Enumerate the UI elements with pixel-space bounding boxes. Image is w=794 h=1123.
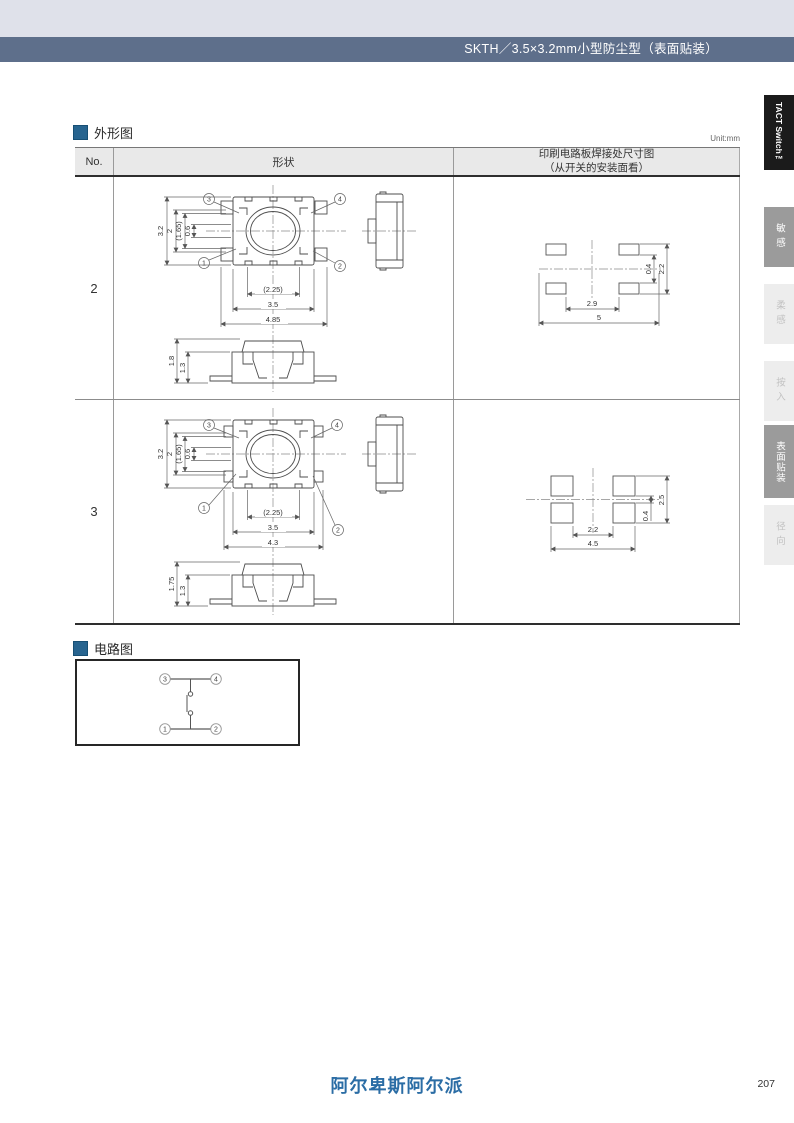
side-tab-label: 径向 [772,521,786,550]
row2-shape-cell: 3.2 2 (1.65) 0.6 (2.25) 3.5 4.85 1.8 1.3 [113,177,453,399]
side-tab-label: 按入 [772,377,786,406]
dim-label: 4.85 [266,315,281,324]
dim-label: (2.25) [263,508,283,517]
circuit-pin-label: 3 [163,677,167,684]
side-tab-label: 敏感 [772,223,786,252]
circuit-diagram: 3 4 1 2 [77,661,298,744]
pin-label: 1 [202,506,206,513]
col-header-shape: 形状 [113,148,453,175]
dim-label: 2.5 [657,495,666,505]
dim-label: 3.5 [268,300,278,309]
row3-pad-cell: 2.5 0.4 2.2 4.5 [453,400,740,623]
dim-label: 1.3 [178,586,187,596]
pin-label: 4 [338,197,342,204]
col-header-pcb: 印刷电路板焊接处尺寸图 （从开关的安装面看） [453,148,740,175]
dim-label: (1.65) [174,221,183,241]
alps-alpine-logo: 阿尔卑斯阿尔派 [0,1072,794,1098]
pin-label: 2 [336,528,340,535]
dim-label: 3.5 [268,523,278,532]
outline-section-header: 外形图 [73,125,133,140]
row2-shape-drawing: 3.2 2 (1.65) 0.6 (2.25) 3.5 4.85 1.8 1.3 [114,177,454,399]
row3-shape-cell: 3.2 2 (1.65) 0.6 (2.25) 3.5 4.3 1.75 1.3 [113,400,453,623]
dim-label: 0.4 [644,264,653,274]
side-tab-smd: 表面贴装 [764,425,794,498]
row3-pad-layout: 2.5 0.4 2.2 4.5 [454,400,739,623]
dim-label: 3.2 [156,226,165,236]
row2-no: 2 [75,177,113,399]
dim-label: 3.2 [156,449,165,459]
datasheet-page: SKTH／3.5×3.2mm小型防尘型（表面贴装） TACT Switch™ 敏… [0,0,794,1123]
circuit-diagram-box: 3 4 1 2 [75,659,300,746]
dim-label: 1.75 [167,577,176,592]
page-number: 207 [757,1078,775,1090]
side-tab-label: 柔感 [772,300,786,329]
dim-label: 2 [165,229,174,233]
dim-label: 2 [165,452,174,456]
side-tab-radial: 径向 [764,505,794,565]
outline-table-header: No. 形状 印刷电路板焊接处尺寸图 （从开关的安装面看） [75,148,740,177]
pin-label: 3 [207,197,211,204]
col-header-pcb-line1: 印刷电路板焊接处尺寸图 [539,148,655,161]
circuit-section-title: 电路图 [94,639,133,658]
dim-label: 2.9 [587,299,597,308]
side-tab-tact-switch: TACT Switch™ [764,95,794,170]
col-header-pcb-line2: （从开关的安装面看） [544,162,649,175]
dim-label: 2.2 [588,525,598,534]
unit-label: Unit:mm [710,134,740,143]
circuit-section-header: 电路图 [73,641,133,656]
row2-pad-cell: 0.4 2.2 2.9 5 [453,177,740,399]
dim-label: 4.5 [588,539,598,548]
section-bullet-icon [73,125,88,140]
side-tab-label: 表面贴装 [772,441,786,483]
circuit-pin-label: 4 [214,677,218,684]
side-tab-push: 按入 [764,361,794,421]
pin-label: 4 [335,423,339,430]
dim-label: 0.4 [641,511,650,521]
row2-pad-layout: 0.4 2.2 2.9 5 [454,177,739,399]
table-row-no3: 3 [75,400,740,625]
row3-no: 3 [75,400,113,623]
dim-label: 1.3 [178,363,187,373]
dim-label: 4.3 [268,538,278,547]
outline-table: No. 形状 印刷电路板焊接处尺寸图 （从开关的安装面看） 2 [75,147,740,625]
circuit-pin-label: 2 [214,727,218,734]
dim-label: (2.25) [263,285,283,294]
side-tab-sensitive: 敏感 [764,207,794,267]
dim-label: 1.8 [167,356,176,366]
dim-label: 2.2 [657,264,666,274]
section-bullet-icon [73,641,88,656]
dim-label: (1.65) [174,444,183,464]
outline-section-title: 外形图 [94,123,133,142]
pin-label: 2 [338,264,342,271]
table-row-no2: 2 [75,177,740,400]
pin-label: 3 [207,423,211,430]
dim-label: 0.6 [183,449,192,459]
side-tab-tact-switch-label: TACT Switch™ [774,102,784,164]
row3-shape-drawing: 3.2 2 (1.65) 0.6 (2.25) 3.5 4.3 1.75 1.3 [114,400,454,623]
circuit-pin-label: 1 [163,727,167,734]
col-header-no: No. [75,148,113,175]
side-tab-soft: 柔感 [764,284,794,344]
page-header-title: SKTH／3.5×3.2mm小型防尘型（表面贴装） [0,37,794,62]
top-decor-band [0,0,794,37]
dim-label: 0.6 [183,226,192,236]
pin-label: 1 [202,261,206,268]
dim-label: 5 [597,313,601,322]
